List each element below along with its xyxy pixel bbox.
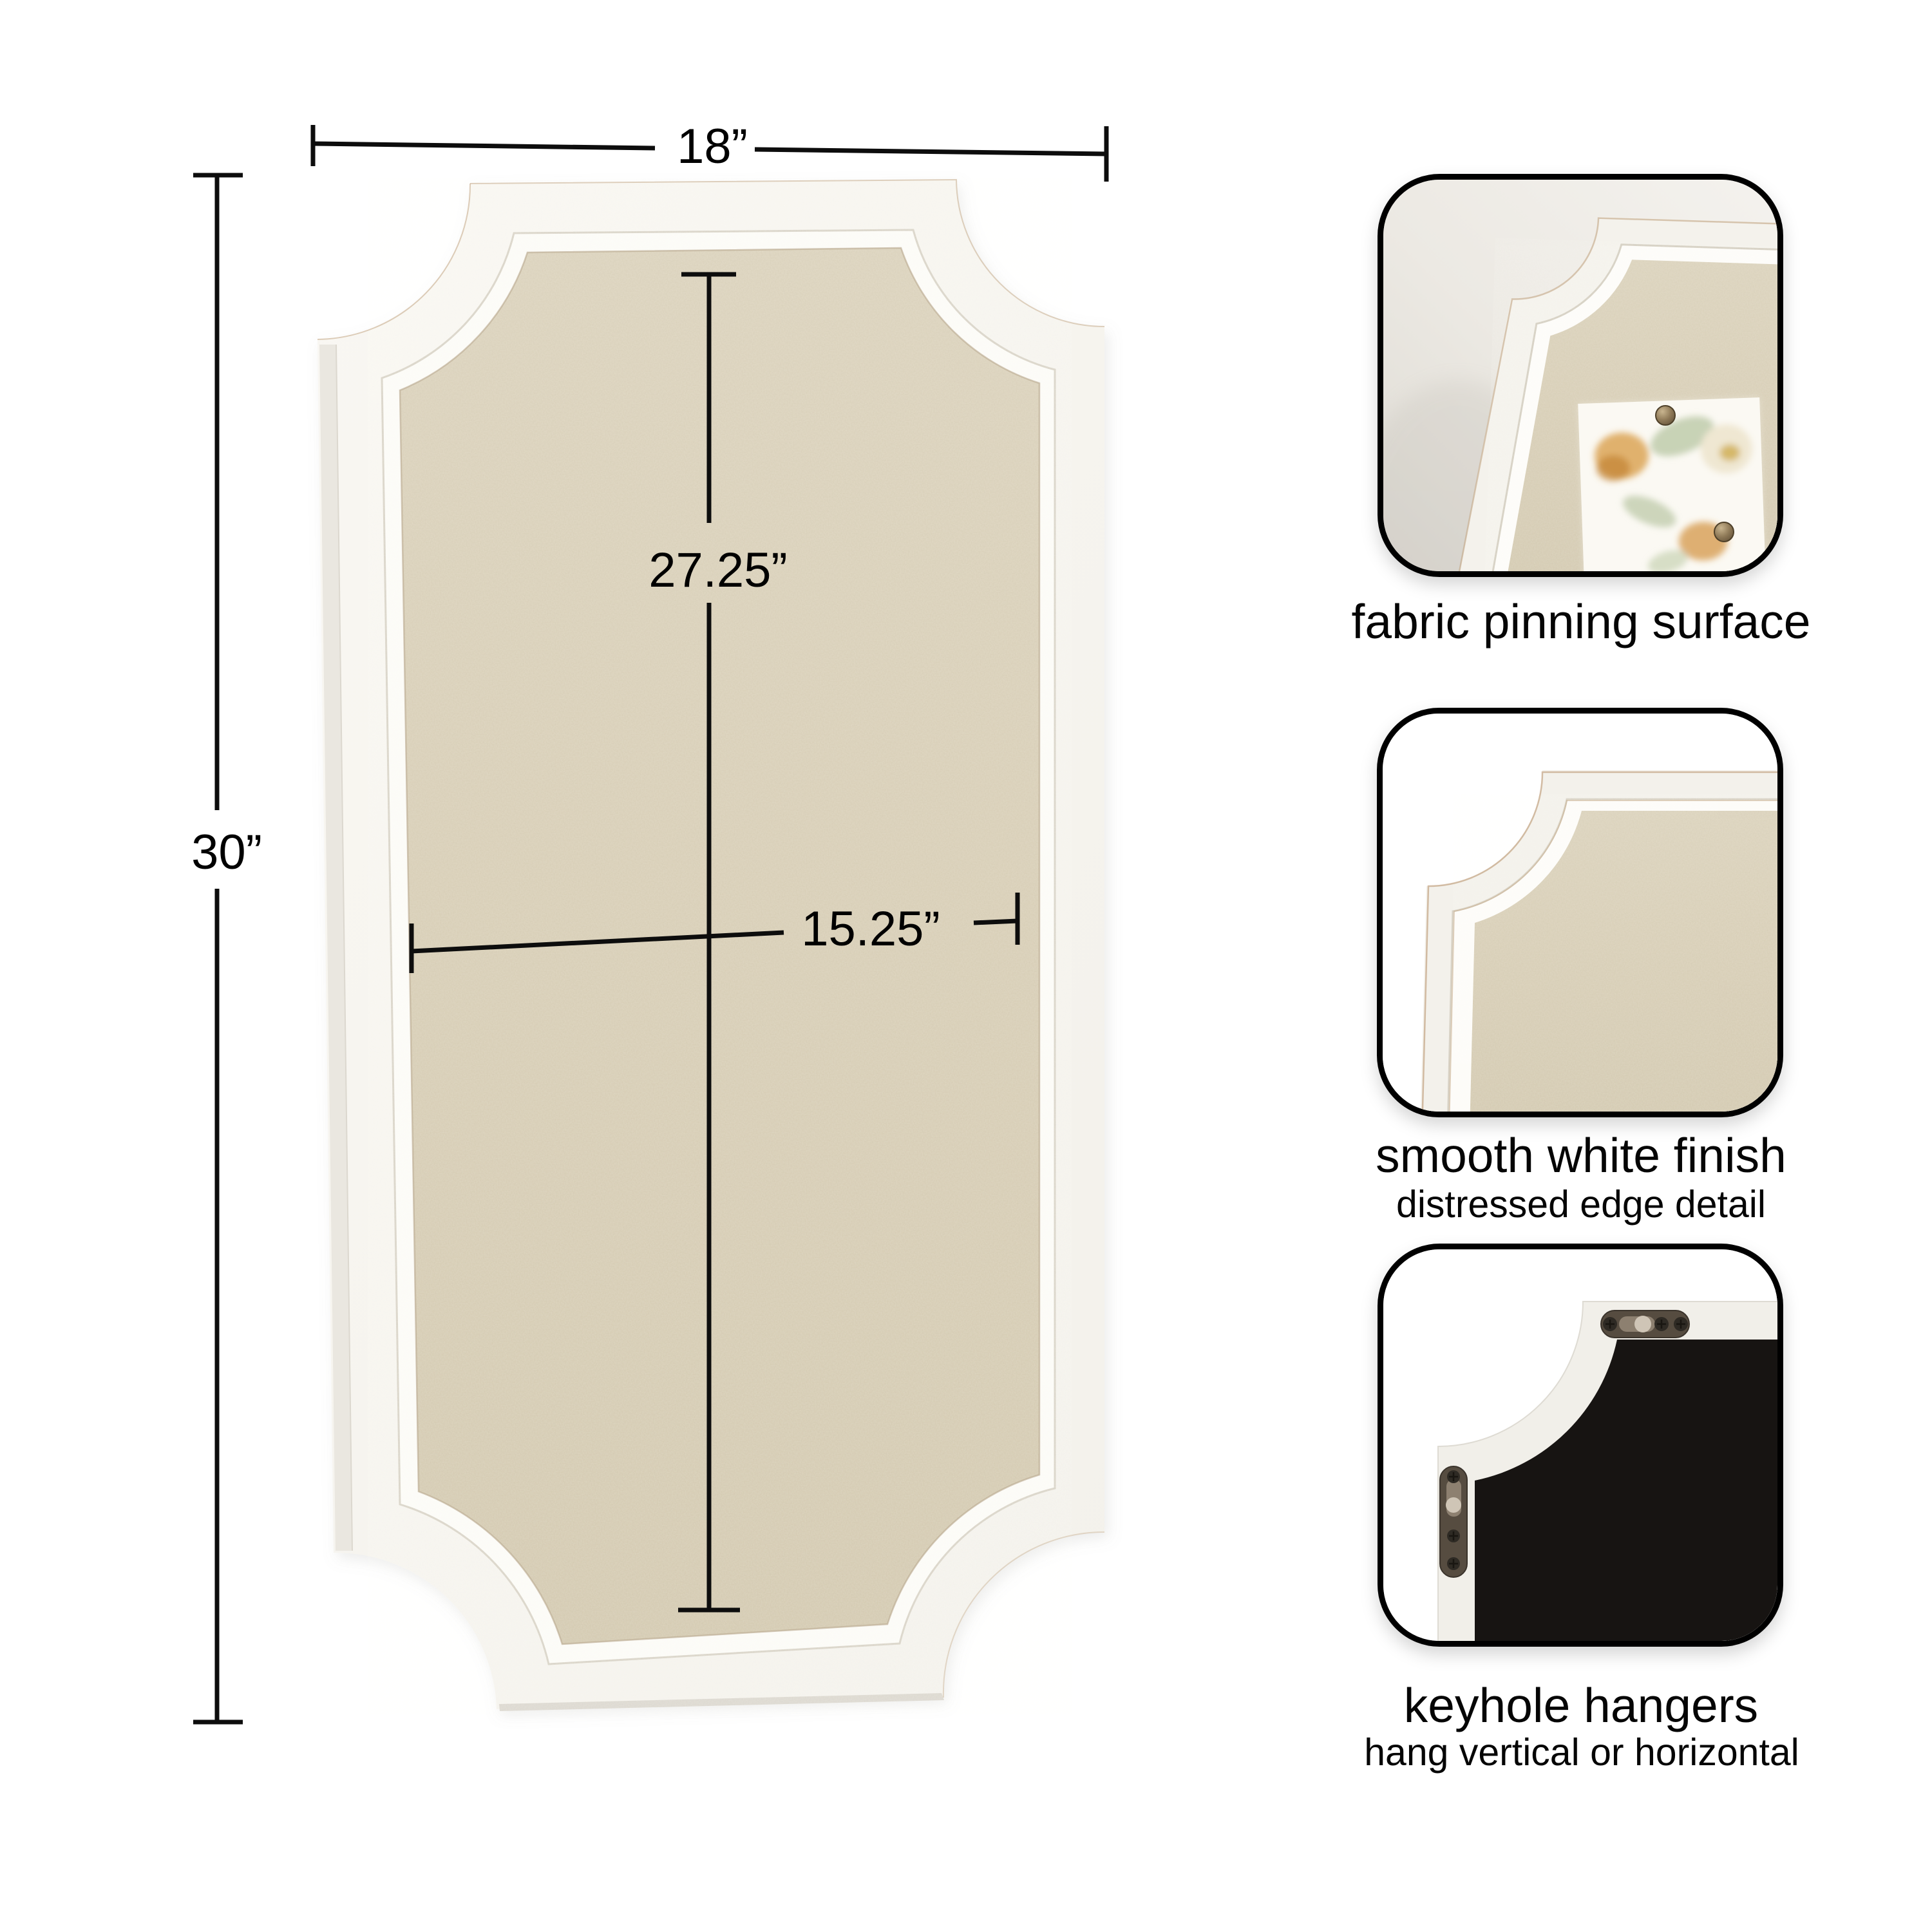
svg-text:hang vertical or horizontal: hang vertical or horizontal [1364,1731,1799,1774]
svg-text:smooth white finish: smooth white finish [1376,1128,1786,1182]
svg-text:27.25”: 27.25” [649,543,788,598]
svg-text:30”: 30” [191,825,262,880]
svg-text:distressed edge detail: distressed edge detail [1396,1183,1766,1226]
svg-text:15.25”: 15.25” [801,902,940,956]
svg-text:keyhole hangers: keyhole hangers [1404,1678,1758,1732]
svg-text:18”: 18” [677,119,748,174]
svg-text:fabric pinning surface: fabric pinning surface [1352,594,1811,649]
